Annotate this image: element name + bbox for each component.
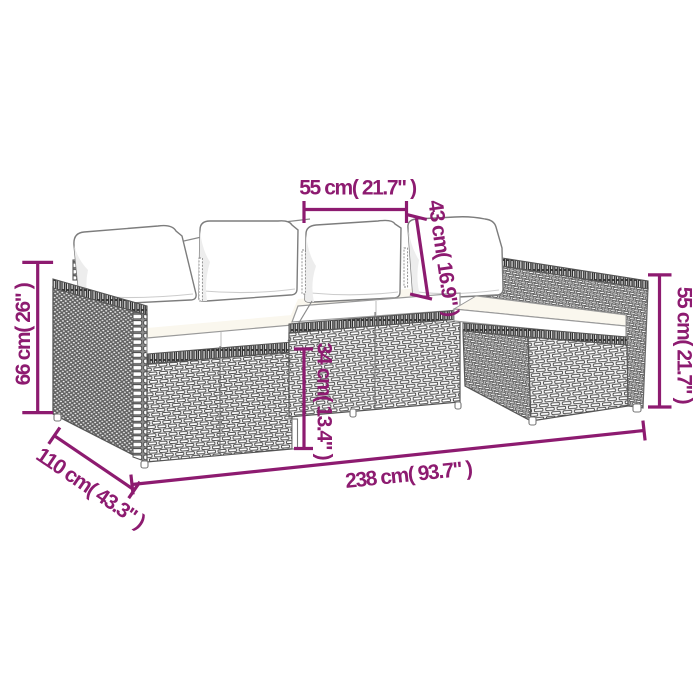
svg-text:66 cm( 26" ): 66 cm( 26" ) bbox=[12, 283, 35, 385]
svg-text:34 cm( 13.4" ): 34 cm( 13.4" ) bbox=[313, 343, 336, 460]
svg-text:55 cm( 21.7" ): 55 cm( 21.7" ) bbox=[299, 177, 416, 200]
svg-text:55 cm( 21.7" ): 55 cm( 21.7" ) bbox=[673, 287, 696, 404]
